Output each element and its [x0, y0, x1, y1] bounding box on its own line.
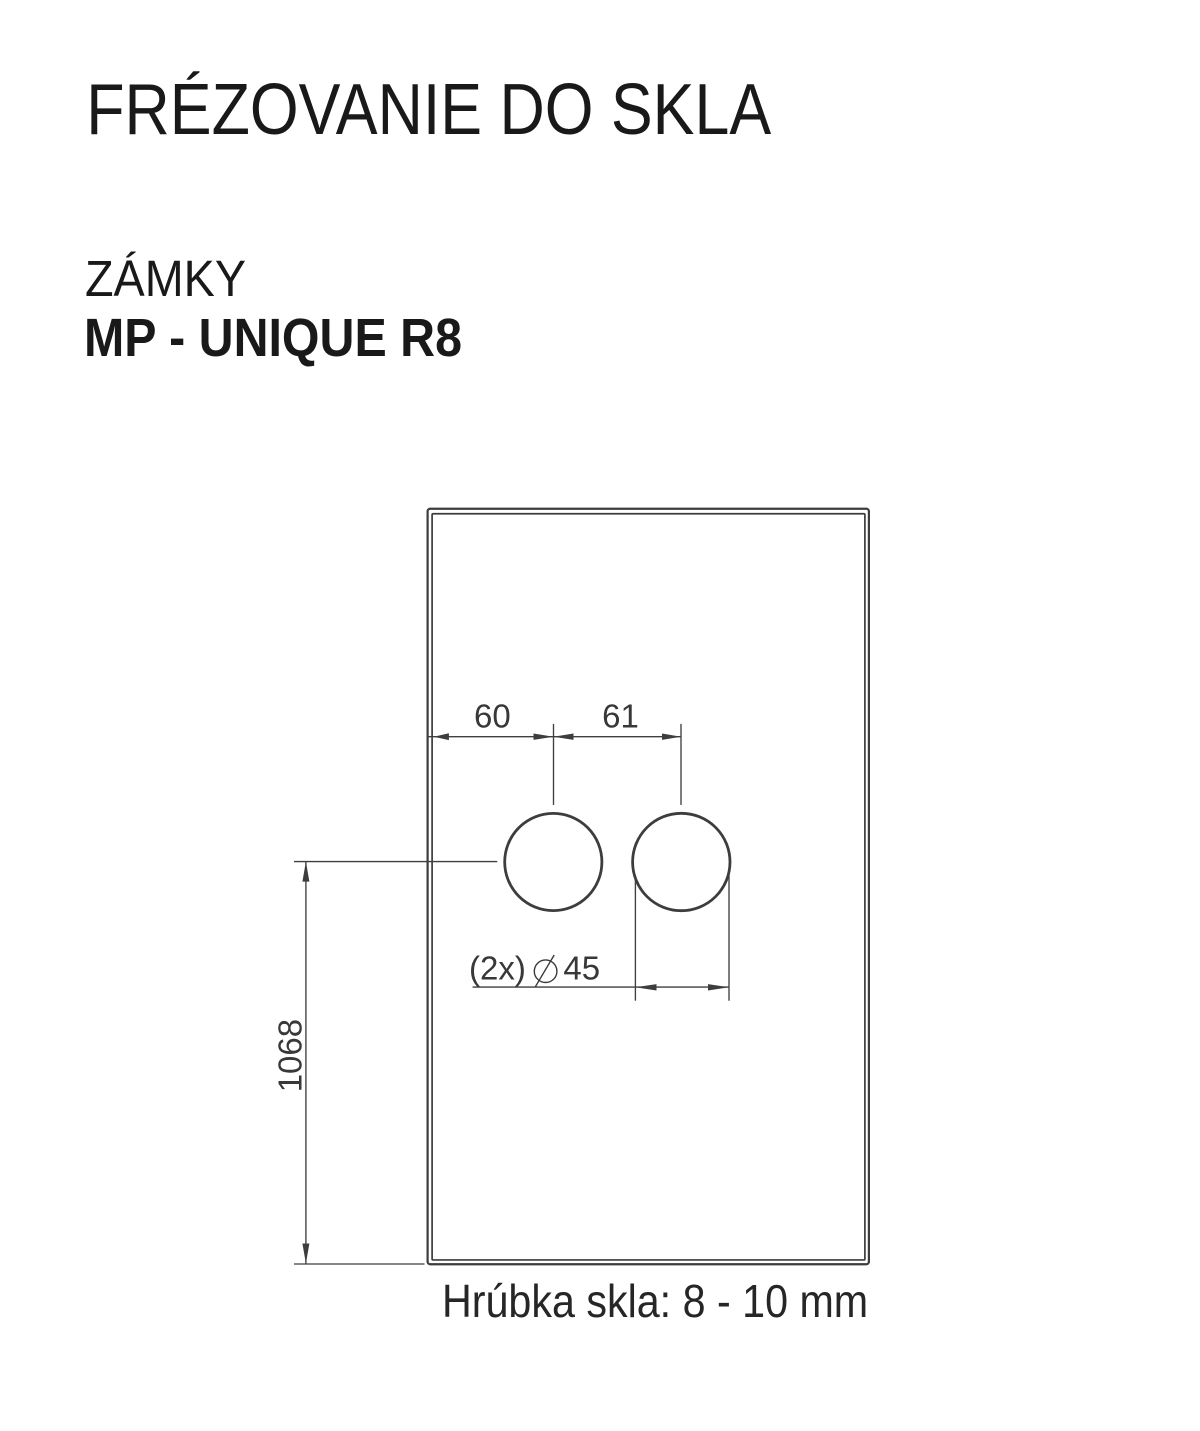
svg-text:MP - UNIQUE R8: MP - UNIQUE R8 — [84, 308, 462, 368]
svg-text:FRÉZOVANIE DO SKLA: FRÉZOVANIE DO SKLA — [86, 70, 772, 150]
svg-text:Hrúbka skla: 8 - 10 mm: Hrúbka skla: 8 - 10 mm — [442, 1276, 868, 1328]
svg-text:45: 45 — [563, 950, 600, 987]
svg-text:ZÁMKY: ZÁMKY — [85, 251, 246, 307]
svg-text:(2x): (2x) — [469, 950, 526, 987]
svg-text:1068: 1068 — [272, 1019, 309, 1092]
svg-text:60: 60 — [474, 698, 511, 735]
svg-text:61: 61 — [602, 698, 639, 735]
